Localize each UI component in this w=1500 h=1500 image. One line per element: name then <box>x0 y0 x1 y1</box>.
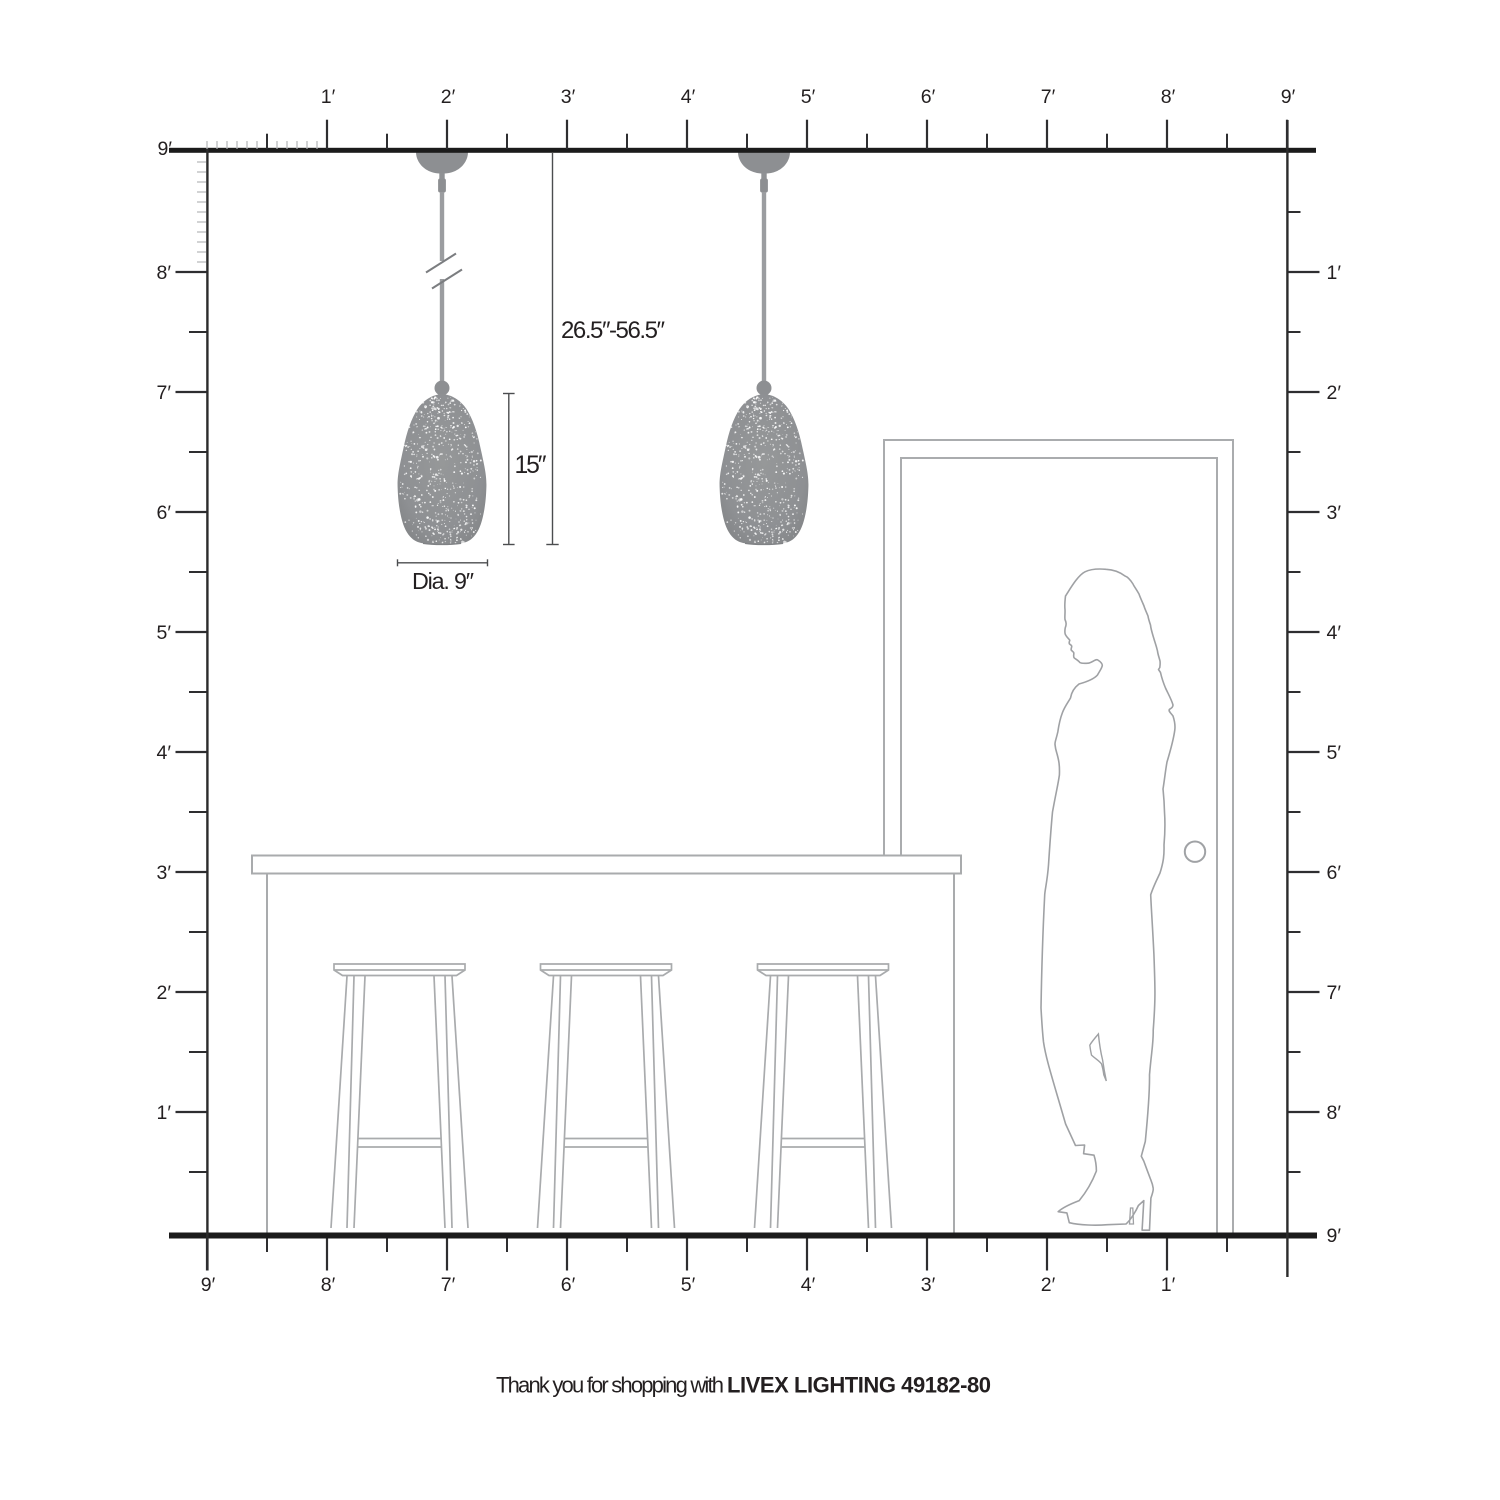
svg-text:7′: 7′ <box>1327 982 1342 1004</box>
svg-text:1′: 1′ <box>1161 1274 1176 1296</box>
svg-text:Dia. 9″: Dia. 9″ <box>412 568 474 594</box>
svg-text:9′: 9′ <box>1327 1225 1342 1247</box>
svg-text:2′: 2′ <box>156 982 171 1004</box>
svg-text:6′: 6′ <box>156 502 171 524</box>
svg-text:7′: 7′ <box>1041 86 1056 108</box>
svg-text:3′: 3′ <box>921 1274 936 1296</box>
svg-text:26.5″-56.5″: 26.5″-56.5″ <box>561 317 666 344</box>
svg-text:8′: 8′ <box>1327 1102 1342 1124</box>
svg-text:7′: 7′ <box>441 1274 456 1296</box>
svg-text:3′: 3′ <box>561 86 576 108</box>
svg-text:1′: 1′ <box>156 1102 171 1124</box>
svg-text:LIVEX LIGHTING 49182-80: LIVEX LIGHTING 49182-80 <box>727 1373 991 1398</box>
svg-text:5′: 5′ <box>1327 742 1342 764</box>
svg-text:6′: 6′ <box>1327 862 1342 884</box>
svg-text:8′: 8′ <box>321 1274 336 1296</box>
svg-text:3′: 3′ <box>156 862 171 884</box>
svg-text:2′: 2′ <box>1041 1274 1056 1296</box>
svg-text:5′: 5′ <box>156 622 171 644</box>
svg-text:1′: 1′ <box>1327 262 1342 284</box>
svg-text:15″: 15″ <box>515 452 547 479</box>
svg-text:9′: 9′ <box>1281 86 1296 108</box>
svg-text:5′: 5′ <box>801 86 816 108</box>
svg-text:1′: 1′ <box>321 86 336 108</box>
svg-text:9′: 9′ <box>201 1274 216 1296</box>
svg-text:2′: 2′ <box>441 86 456 108</box>
svg-text:2′: 2′ <box>1327 382 1342 404</box>
svg-text:9′: 9′ <box>157 138 172 160</box>
svg-text:4′: 4′ <box>1327 622 1342 644</box>
svg-text:4′: 4′ <box>681 86 696 108</box>
svg-text:6′: 6′ <box>921 86 936 108</box>
svg-text:6′: 6′ <box>561 1274 576 1296</box>
svg-text:Thank you for shopping with: Thank you for shopping with <box>496 1373 724 1398</box>
svg-text:8′: 8′ <box>156 262 171 284</box>
svg-text:5′: 5′ <box>681 1274 696 1296</box>
svg-text:7′: 7′ <box>156 382 171 404</box>
svg-text:4′: 4′ <box>156 742 171 764</box>
svg-text:4′: 4′ <box>801 1274 816 1296</box>
svg-text:3′: 3′ <box>1327 502 1342 524</box>
svg-text:8′: 8′ <box>1161 86 1176 108</box>
